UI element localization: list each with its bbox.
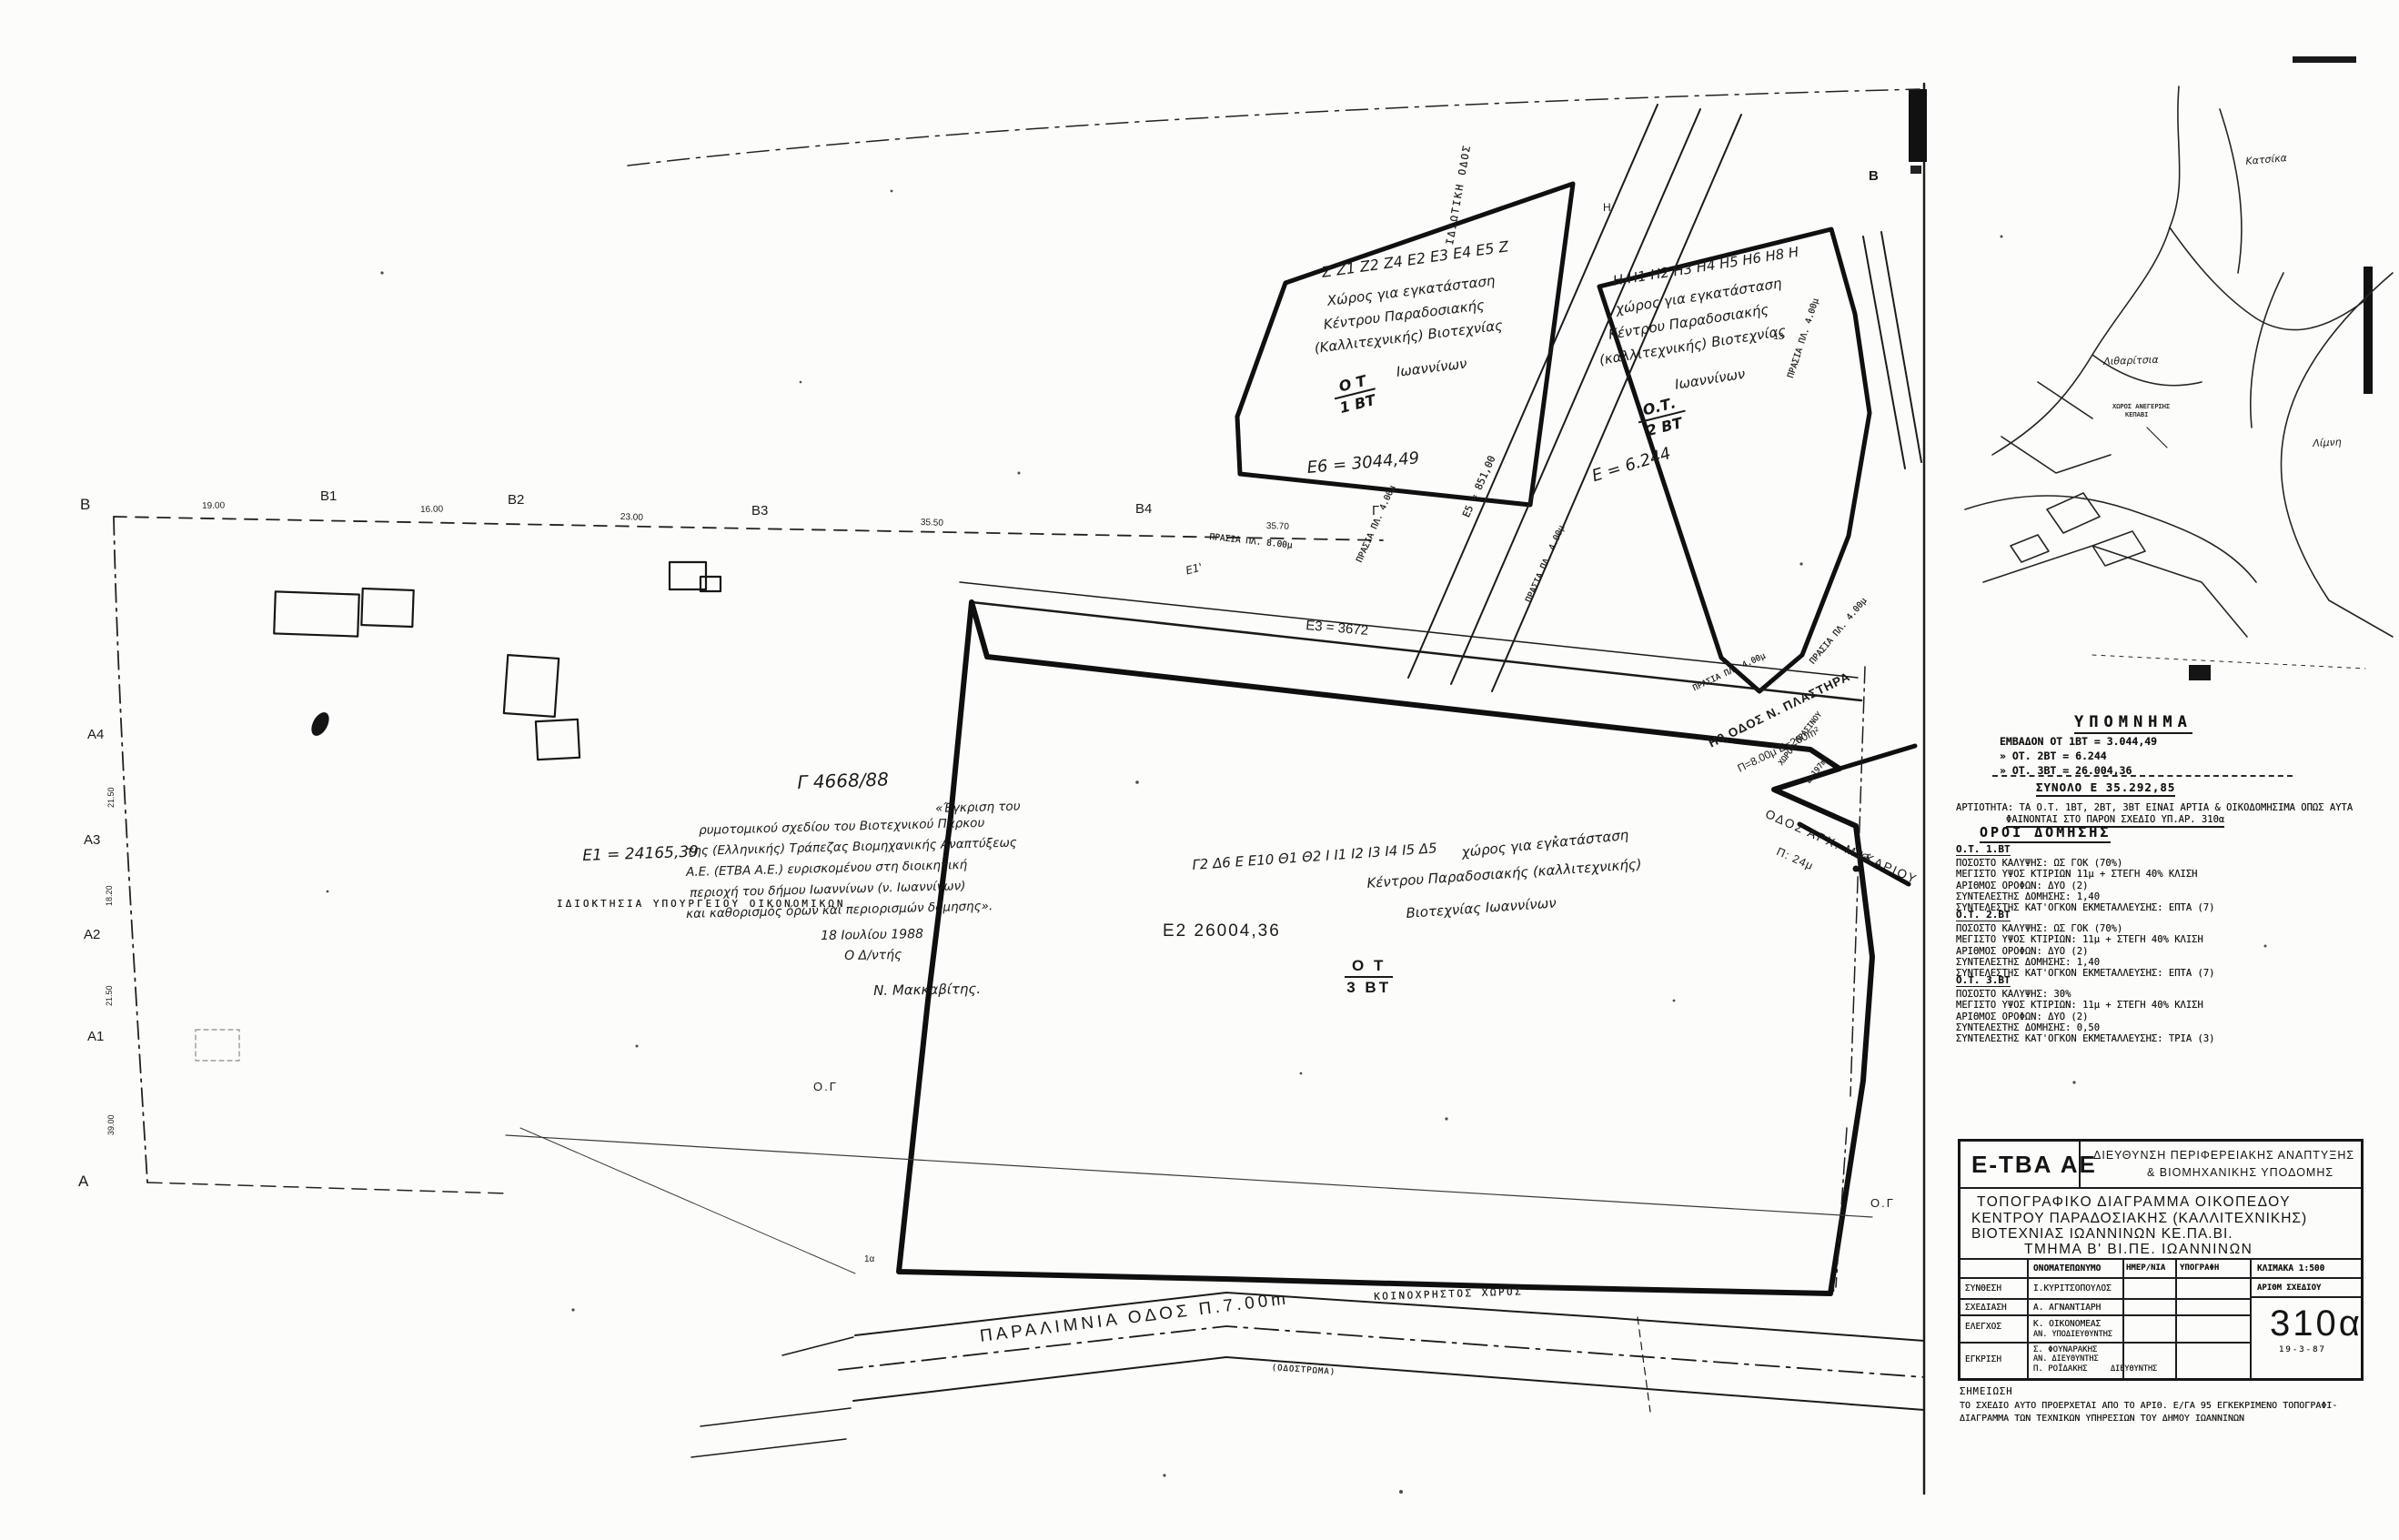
col-header-date: ΗΜΕΡ/ΝΙΑ	[2126, 1263, 2165, 1273]
dim-b-b1: 19.00	[202, 502, 225, 512]
department-line-1: ΔΙΕΥΘΥΝΣΗ ΠΕΡΙΦΕΡΕΙΑΚΗΣ ΑΝΑΠΤΥΞΗΣ	[2093, 1149, 2354, 1162]
oroi-1bt-far: ΣΥΝΤΕΛΕΣΤΗΣ ΔΟΜΗΣΗΣ: 1,40	[1956, 891, 2214, 902]
cell-drafting-name: Α. ΑΓΝΑΝΤΙΑΡΗ	[2033, 1303, 2101, 1313]
drawing-date: 19-3-87	[2279, 1345, 2326, 1354]
row-label-drafting: ΣΧΕΔΙΑΣΗ	[1965, 1303, 2007, 1313]
oroi-1bt-floors: ΑΡΙΘΜΟΣ ΟΡΟΦΩΝ: ΔΥΟ (2)	[1956, 881, 2214, 891]
oroi-2bt-height: ΜΕΓΙΣΤΟ ΥΨΟΣ ΚΤΙΡΙΩΝ: 11μ + ΣΤΕΓΗ 40% ΚΛ…	[1956, 934, 2214, 945]
oroi-2bt-far: ΣΥΝΤΕΛΕΣΤΗΣ ΔΟΜΗΣΗΣ: 1,40	[1956, 957, 2214, 968]
inset-label-limni: Λίμνη	[2313, 437, 2342, 448]
dim-a4-a3: 21.50	[107, 787, 116, 808]
point-label-b-top: Β	[1869, 169, 1879, 184]
oroi-1bt-height: ΜΕΓΙΣΤΟ ΥΨΟΣ ΚΤΙΡΙΩΝ 11μ + ΣΤΕΓΗ 40% ΚΛΙ…	[1956, 869, 2214, 880]
existing-buildings	[196, 562, 721, 1061]
oroi-2bt-heading: Ο.Τ. 2.ΒΤ	[1956, 909, 2011, 921]
point-label-1a: 1α	[864, 1255, 874, 1265]
approval-signature: Ν. Μακκαβίτης.	[873, 982, 981, 999]
point-label-a4: Α4	[87, 728, 104, 742]
approval-role: Ο Δ/ντής	[844, 949, 902, 963]
p3-block-den: 3 ΒΤ	[1345, 978, 1393, 997]
department-line-2: & ΒΙΟΜΗΧΑΝΙΚΗΣ ΥΠΟΔΟΜΗΣ	[2147, 1166, 2333, 1179]
mark-13: -13	[1770, 333, 1783, 343]
cell-approval-role-2: ΔΙΕΥΘΥΝΤΗΣ	[2111, 1364, 2157, 1374]
p3-block-num: Ο Τ	[1345, 957, 1393, 978]
row-label-approval: ΕΓΚΡΙΣΗ	[1965, 1354, 2001, 1364]
makariou-axis	[1836, 667, 1865, 1287]
point-label-a1: Α1	[87, 1030, 104, 1044]
oroi-2bt-coverage: ΠΟΣΟΣΤΟ ΚΑΛΥΨΗΣ: ΩΣ ΓΟΚ (70%)	[1956, 923, 2214, 934]
approval-line-1: «Έγκριση του	[935, 800, 1021, 816]
inset-label-kepavi-1: ΧΩΡΟΣ ΑΝΕΓΕΡΣΗΣ	[2112, 404, 2170, 410]
artiotita-line-1: ΑΡΤΙΟΤΗΤΑ: ΤΑ Ο.Τ. 1ΒΤ, 2ΒΤ, 3ΒΤ ΕΙΝΑΙ Α…	[1956, 802, 2353, 813]
point-label-a2: Α2	[84, 928, 100, 942]
dim-b2-b3: 23.00	[620, 513, 643, 523]
row-label-check: ΕΛΕΓΧΟΣ	[1965, 1322, 2001, 1332]
point-label-a: Α	[78, 1173, 88, 1190]
row-label-synthesis: ΣΥΝΘΕΣΗ	[1965, 1283, 2001, 1293]
drawing-title-line-3: ΒΙΟΤΕΧΝΙΑΣ ΙΩΑΝΝΙΝΩΝ ΚΕ.ΠΑ.ΒΙ.	[1971, 1226, 2233, 1243]
cell-synthesis-name: Ι.ΚΥΡΙΤΣΟΠΟΥΛΟΣ	[2033, 1283, 2112, 1293]
inset-map-sketch	[1965, 86, 2393, 669]
point-label-a3: Α3	[84, 833, 100, 848]
legend-row-1: ΕΜΒΑΔΟΝ ΟΤ 1ΒΤ = 3.044,49	[2000, 735, 2157, 748]
drawing-title-line-1: ΤΟΠΟΓΡΑΦΙΚΟ ΔΙΑΓΡΑΜΜΑ ΟΙΚΟΠΕΔΟΥ	[1977, 1194, 2291, 1211]
oroi-1bt-coverage: ΠΟΣΟΣΤΟ ΚΑΛΥΨΗΣ: ΩΣ ΓΟΚ (70%)	[1956, 858, 2214, 869]
note-heading: ΣΗΜΕΙΩΣΗ	[1960, 1386, 2013, 1397]
oroi-2bt-floors: ΑΡΙΘΜΟΣ ΟΡΟΦΩΝ: ΔΥΟ (2)	[1956, 946, 2214, 957]
cell-approval-name-2: Π. ΡΟΪΔΑΚΗΣ	[2033, 1364, 2088, 1374]
point-label-b4: Β4	[1135, 502, 1152, 517]
drawing-number-label: ΑΡΙΘΜ ΣΧΕΔΙΟΥ	[2257, 1283, 2321, 1293]
point-label-b2: Β2	[508, 493, 524, 508]
legend-total: ΣΥΝΟΛΟ Ε 35.292,85	[2036, 780, 2175, 797]
inset-label-litharitsia: Λιθαρίτσια	[2103, 355, 2159, 367]
legend-title: ΥΠΟΜΝΗΜΑ	[2074, 713, 2192, 734]
point-label-h: Η	[1603, 202, 1611, 214]
scanned-topographic-drawing: Β19.00Β116.00Β223.00Β335.50Β435.70ΓΑ421.…	[0, 0, 2399, 1540]
p3-block-number: Ο Τ 3 ΒΤ	[1345, 957, 1393, 997]
oroi-section-3bt: Ο.Τ. 3.ΒΤ ΠΟΣΟΣΤΟ ΚΑΛΥΨΗΣ: 30% ΜΕΓΙΣΤΟ Υ…	[1956, 970, 2214, 1044]
oroi-section-2bt: Ο.Τ. 2.ΒΤ ΠΟΣΟΣΤΟ ΚΑΛΥΨΗΣ: ΩΣ ΓΟΚ (70%) …	[1956, 904, 2214, 979]
cell-check-role: ΑΝ. ΥΠΟΔΙΕΥΘΥΝΤΗΣ	[2033, 1330, 2112, 1339]
p3-area: Ε2 26004,36	[1163, 922, 1281, 941]
point-label-i: Ι	[1832, 1283, 1835, 1294]
dim-a1-a: 39.00	[107, 1114, 116, 1135]
oroi-3bt-height: ΜΕΓΙΣΤΟ ΥΨΟΣ ΚΤΙΡΙΩΝ: 11μ + ΣΤΕΓΗ 40% ΚΛ…	[1956, 1000, 2214, 1011]
e3-strip-lines	[960, 582, 1861, 700]
oroi-3bt-volume: ΣΥΝΤΕΛΕΣΤΗΣ ΚΑΤ'ΟΓΚΟΝ ΕΚΜΕΤΑΛΛΕΥΣΗΣ: ΤΡΙ…	[1956, 1033, 2214, 1044]
dim-a3-a2: 18.20	[106, 885, 114, 906]
point-label-b1: Β1	[320, 489, 337, 504]
col-header-name: ΟΝΟΜΑΤΕΠΩΝΥΜΟ	[2033, 1263, 2101, 1273]
drawing-title-line-2: ΚΕΝΤΡΟΥ ΠΑΡΑΔΟΣΙΑΚΗΣ (ΚΑΛΛΙΤΕΧΝΙΚΗΣ)	[1971, 1211, 2307, 1227]
oroi-3bt-coverage: ΠΟΣΟΣΤΟ ΚΑΛΥΨΗΣ: 30%	[1956, 989, 2214, 1000]
oroi-3bt-far: ΣΥΝΤΕΛΕΣΤΗΣ ΔΟΜΗΣΗΣ: 0,50	[1956, 1022, 2214, 1033]
oroi-3bt-heading: Ο.Τ. 3.ΒΤ	[1956, 974, 2011, 987]
cell-approval-name-1: Σ. ΦΟΥΝΑΡΑΚΗΣ	[2033, 1345, 2097, 1354]
org-logo-text: Ε-ΤΒΑ ΑΕ	[1971, 1151, 2097, 1179]
dim-b1-b2: 16.00	[420, 506, 443, 516]
point-label-b: Β	[80, 497, 90, 513]
parcel-3-outline	[899, 602, 1915, 1293]
scale-label: ΚΛΙΜΑΚΑ 1:500	[2257, 1263, 2324, 1273]
inset-label-kepavi-2: ΚΕΠΑΒΙ	[2125, 412, 2148, 418]
legend-divider	[1992, 775, 2293, 777]
left-parcel-boundary	[114, 89, 1920, 1193]
cell-approval-role-1: ΑΝ. ΔΙΕΥΘΥΝΤΗΣ	[2033, 1354, 2099, 1364]
drawing-number: 310α	[2270, 1303, 2363, 1344]
note-line-1: ΤΟ ΣΧΕΔΙΟ ΑΥΤΟ ΠΡΟΕΡΧΕΤΑΙ ΑΠΟ ΤΟ ΑΡΙΘ. Ε…	[1960, 1401, 2337, 1411]
legend-row-2: » ΟΤ. 2ΒΤ = 6.244	[2000, 750, 2107, 762]
approval-date: 18 Ιουλίου 1988	[821, 928, 923, 943]
point-label-b3: Β3	[751, 504, 768, 518]
approval-ref: Γ 4668/88	[797, 770, 889, 791]
building-line-label-2: Ο.Γ	[1870, 1197, 1895, 1210]
cell-check-name: Κ. ΟΙΚΟΝΟΜΕΑΣ	[2033, 1319, 2101, 1329]
point-label-th: Θ'	[1861, 853, 1871, 864]
drawing-title-line-4: ΤΜΗΜΑ Β' ΒΙ.ΠΕ. ΙΩΑΝΝΙΝΩΝ	[2024, 1242, 2253, 1258]
title-block: Ε-ΤΒΑ ΑΕ ΔΙΕΥΘΥΝΣΗ ΠΕΡΙΦΕΡΕΙΑΚΗΣ ΑΝΑΠΤΥΞ…	[1958, 1139, 2364, 1381]
oroi-1bt-heading: Ο.Τ. 1.ΒΤ	[1956, 843, 2011, 856]
oroi-3bt-floors: ΑΡΙΘΜΟΣ ΟΡΟΦΩΝ: ΔΥΟ (2)	[1956, 1012, 2214, 1022]
note-line-2: ΔΙΑΓΡΑΜΜΑ ΤΩΝ ΤΕΧΝΙΚΩΝ ΥΠΗΡΕΣΙΩΝ ΤΟΥ ΔΗΜ…	[1960, 1414, 2244, 1424]
building-lines	[506, 1128, 1872, 1273]
building-line-label-1: Ο.Γ	[813, 1081, 838, 1093]
oroi-section-1bt: Ο.Τ. 1.ΒΤ ΠΟΣΟΣΤΟ ΚΑΛΥΨΗΣ: ΩΣ ΓΟΚ (70%) …	[1956, 839, 2214, 913]
dim-a2-a1: 21.50	[106, 985, 114, 1006]
col-header-signature: ΥΠΟΓΡΑΦΗ	[2180, 1263, 2219, 1273]
dim-b4-g: 35.70	[1266, 522, 1289, 532]
dim-b3-b4: 35.50	[921, 518, 943, 528]
